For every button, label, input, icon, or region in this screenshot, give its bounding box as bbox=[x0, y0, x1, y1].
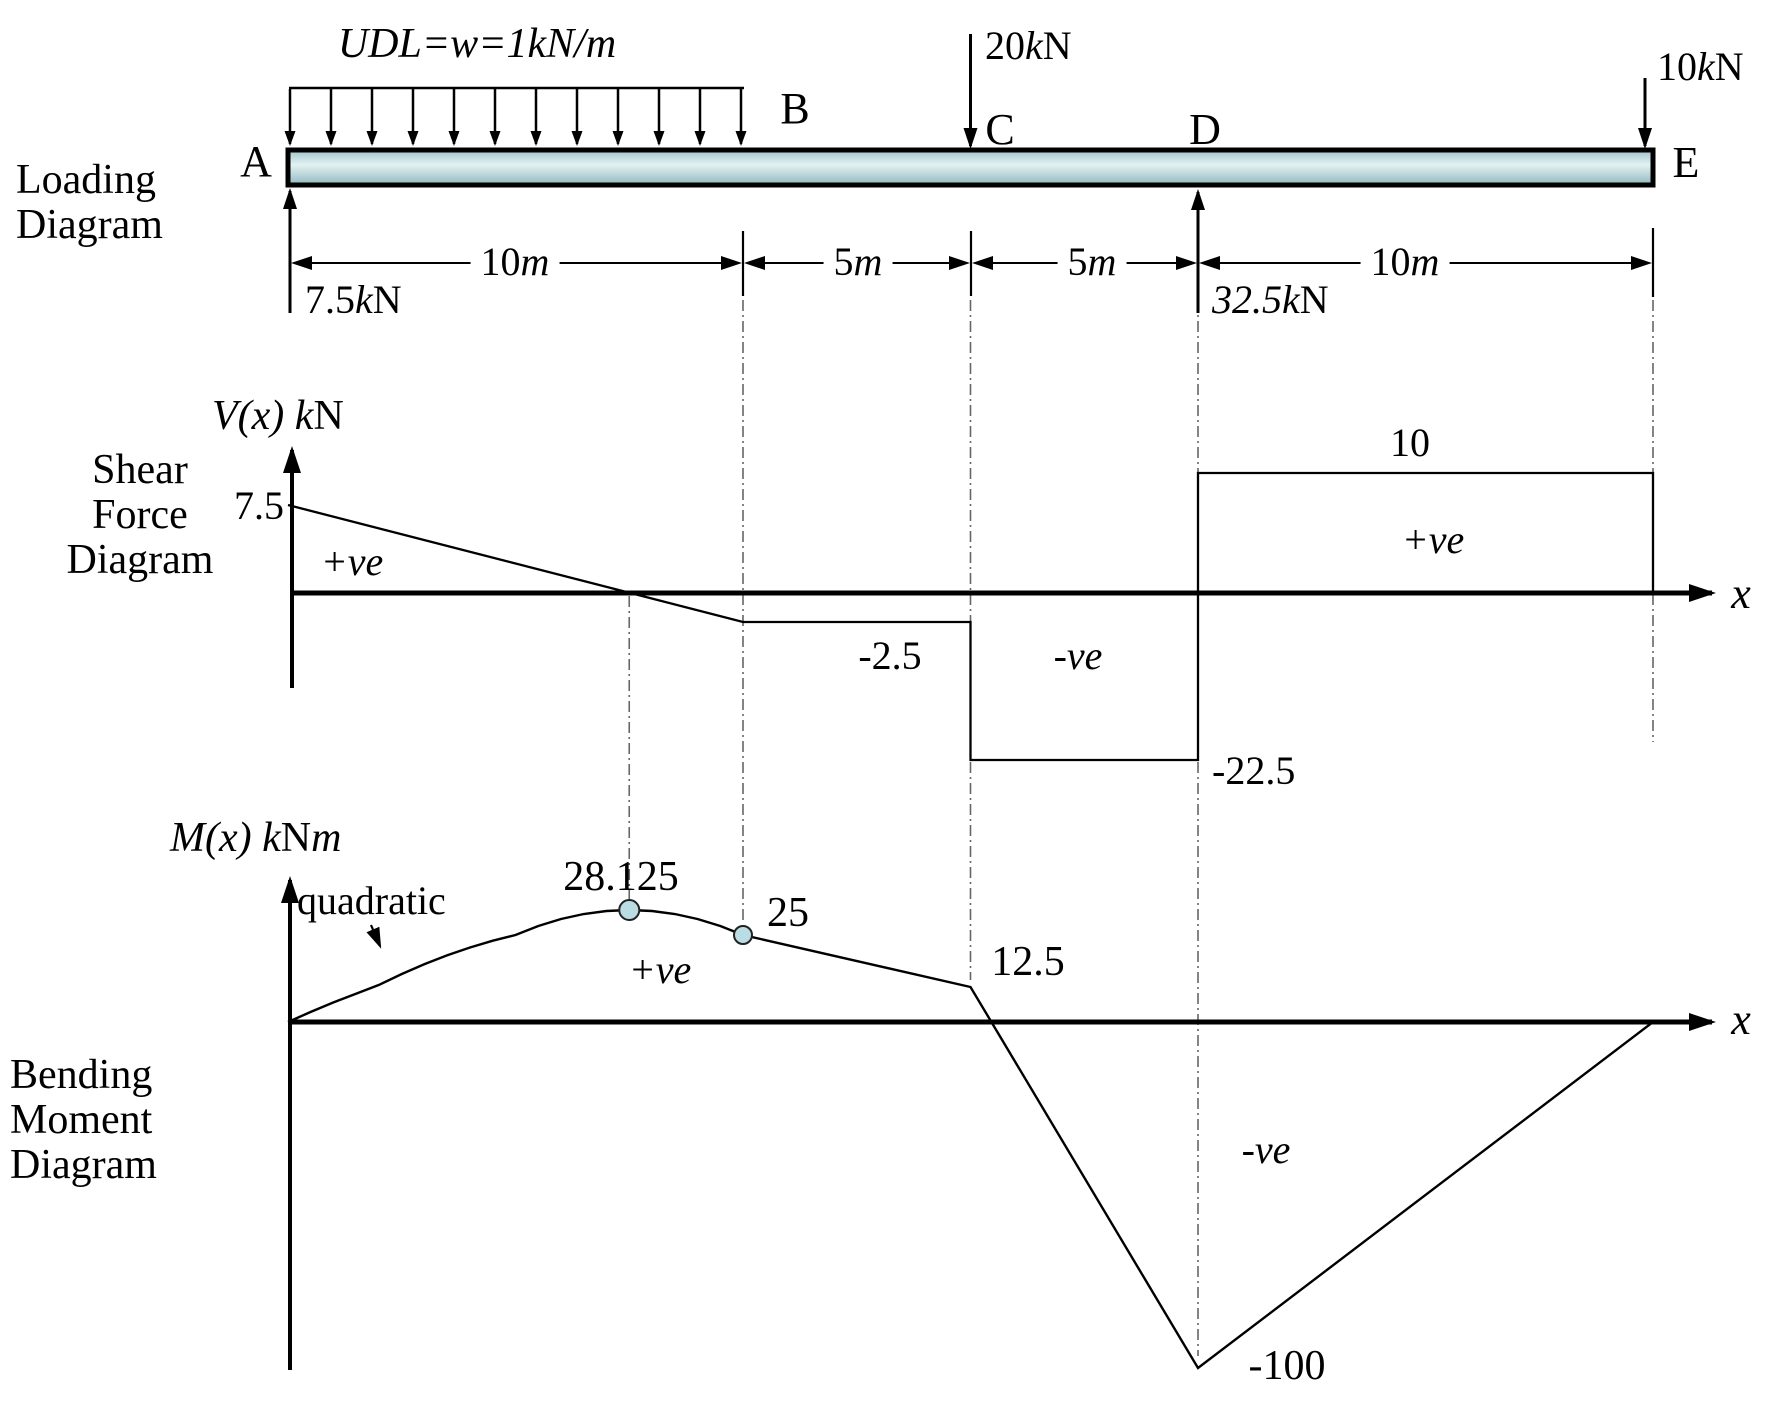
max-moment-marker bbox=[619, 900, 639, 920]
bmd-value-25: 25 bbox=[767, 892, 809, 934]
point-label-c: C bbox=[985, 108, 1014, 152]
udl-arrows bbox=[290, 89, 741, 144]
shear-force-diagram-title: ShearForceDiagram bbox=[67, 448, 214, 583]
dim-d-e: 10m bbox=[1361, 242, 1450, 282]
sfd-value-10: 10 bbox=[1390, 423, 1430, 463]
dim-c-d: 5m bbox=[1058, 242, 1127, 282]
load-c-label: 20kN bbox=[985, 26, 1072, 66]
sfd-value-7-5: 7.5 bbox=[234, 486, 284, 526]
reaction-d-label: 32.5kN bbox=[1212, 280, 1329, 320]
point-label-e: E bbox=[1673, 141, 1700, 185]
bmd-value-28-125: 28.125 bbox=[563, 856, 679, 898]
bmd-x-axis-label: x bbox=[1731, 998, 1751, 1042]
bmd-positive-region: +ve bbox=[629, 950, 692, 990]
point-label-d: D bbox=[1189, 108, 1221, 152]
sfd-positive-region-1: +ve bbox=[321, 542, 384, 582]
sfd-x-axis-label: x bbox=[1731, 572, 1751, 616]
dim-b-c: 5m bbox=[824, 242, 893, 282]
load-e-label: 10kN bbox=[1657, 47, 1744, 87]
sfd-axis-label: V(x) kN bbox=[212, 395, 344, 437]
quadratic-label: quadratic bbox=[297, 881, 446, 921]
udl-label: UDL=w=1kN/m bbox=[338, 23, 616, 65]
bending-moment-diagram-title: BendingMomentDiagram bbox=[10, 1053, 157, 1188]
sfd-negative-region: -ve bbox=[1054, 636, 1103, 676]
diagram-graphics bbox=[0, 0, 1778, 1408]
quadratic-pointer-arrow bbox=[371, 925, 380, 946]
reaction-a-label: 7.5kN bbox=[305, 280, 402, 320]
sfd-positive-region-2: +ve bbox=[1402, 520, 1465, 560]
sfd-value-neg-22-5: -22.5 bbox=[1212, 751, 1295, 791]
bmd-axis-label: M(x) kNm bbox=[170, 817, 341, 859]
beam bbox=[288, 150, 1653, 185]
sfd-value-neg-2-5: -2.5 bbox=[858, 636, 921, 676]
point-label-b: B bbox=[780, 87, 809, 131]
bmd-value-neg-100: -100 bbox=[1249, 1345, 1326, 1387]
bmd-value-12-5: 12.5 bbox=[991, 941, 1065, 983]
bmd-negative-region: -ve bbox=[1242, 1130, 1291, 1170]
guide-lines bbox=[629, 300, 1653, 1356]
moment-at-b-marker bbox=[734, 926, 752, 944]
dim-a-b: 10m bbox=[471, 242, 560, 282]
figure-canvas: LoadingDiagram ShearForceDiagram Bending… bbox=[0, 0, 1778, 1408]
point-label-a: A bbox=[240, 140, 272, 184]
loading-diagram-title: LoadingDiagram bbox=[16, 158, 163, 248]
